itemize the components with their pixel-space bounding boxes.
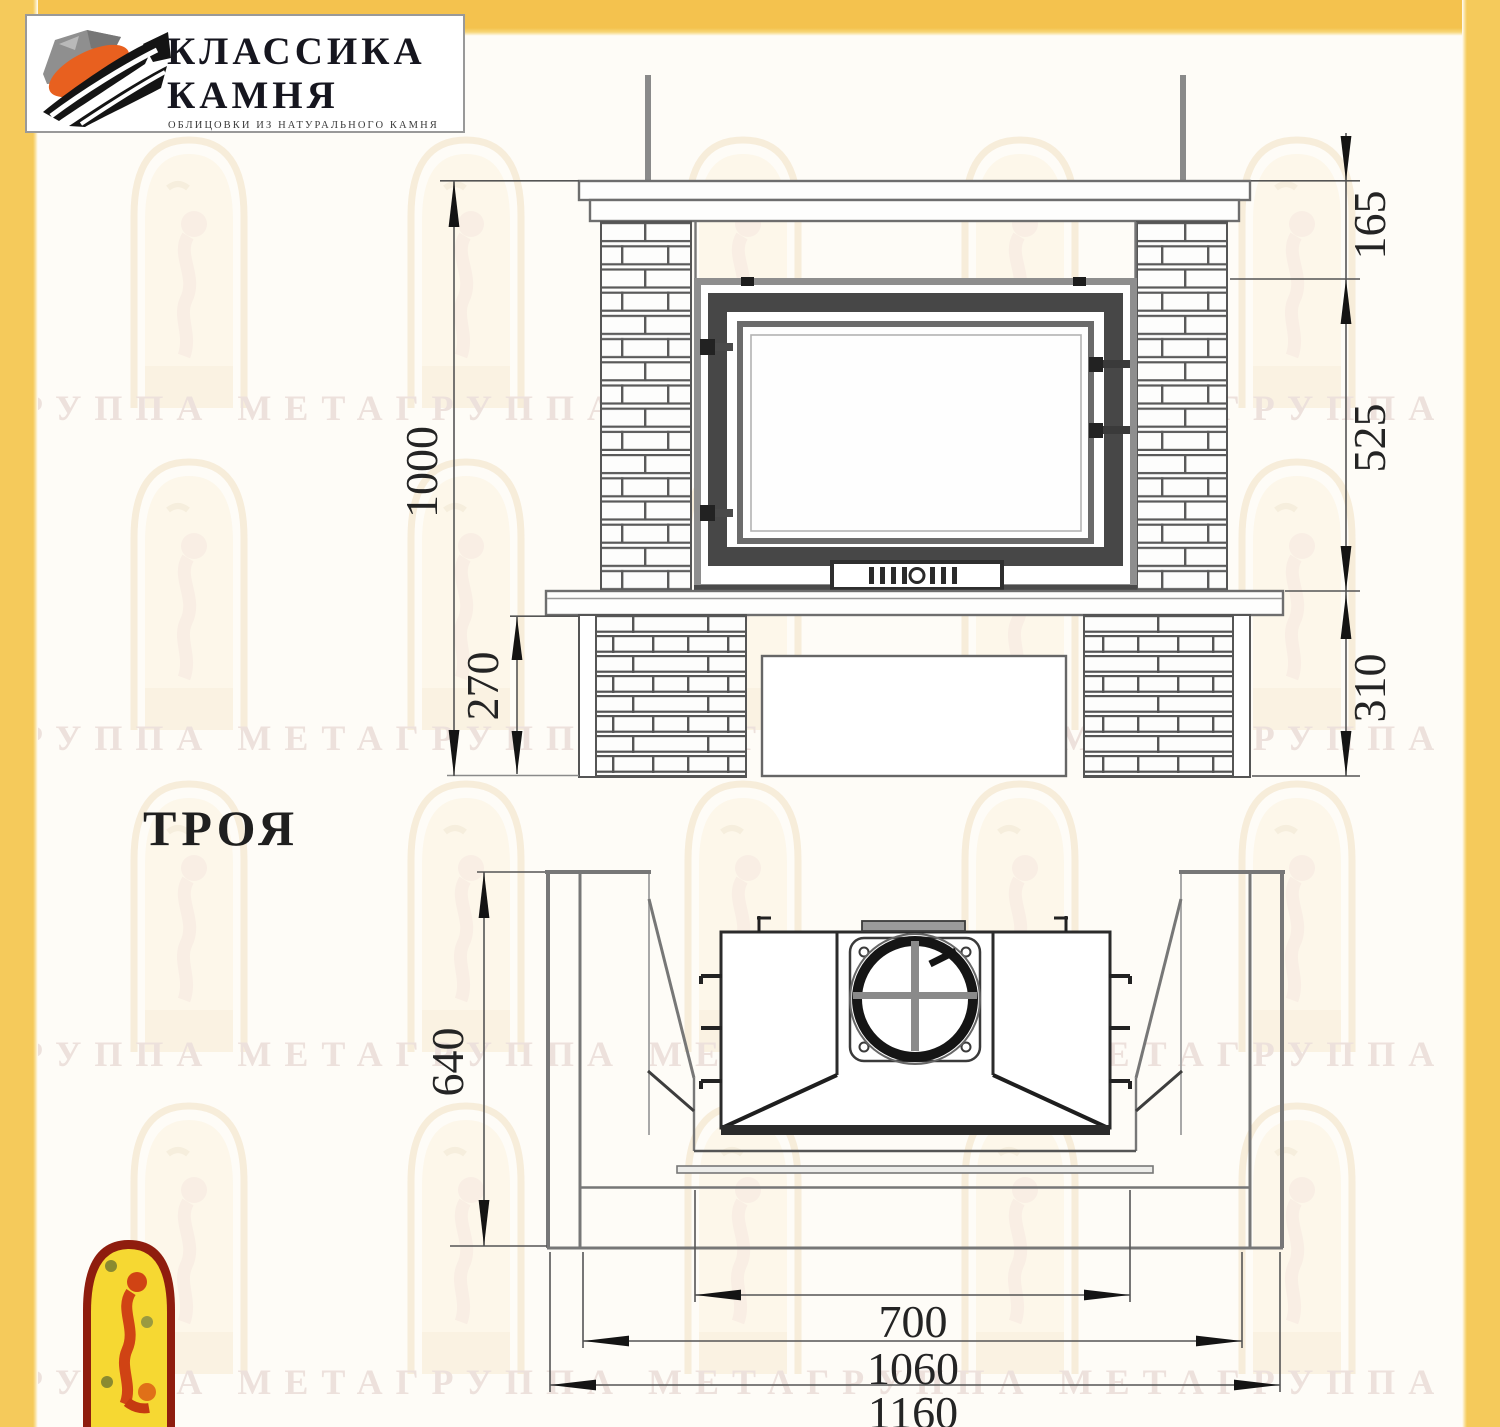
svg-text:1160: 1160 — [868, 1387, 958, 1427]
svg-text:270: 270 — [457, 652, 508, 721]
svg-text:1000: 1000 — [396, 426, 447, 518]
svg-text:525: 525 — [1344, 404, 1395, 473]
svg-text:700: 700 — [879, 1296, 948, 1347]
svg-text:ТРОЯ: ТРОЯ — [143, 800, 299, 856]
svg-text:310: 310 — [1344, 654, 1395, 723]
svg-text:640: 640 — [422, 1028, 473, 1097]
svg-text:165: 165 — [1344, 191, 1395, 260]
